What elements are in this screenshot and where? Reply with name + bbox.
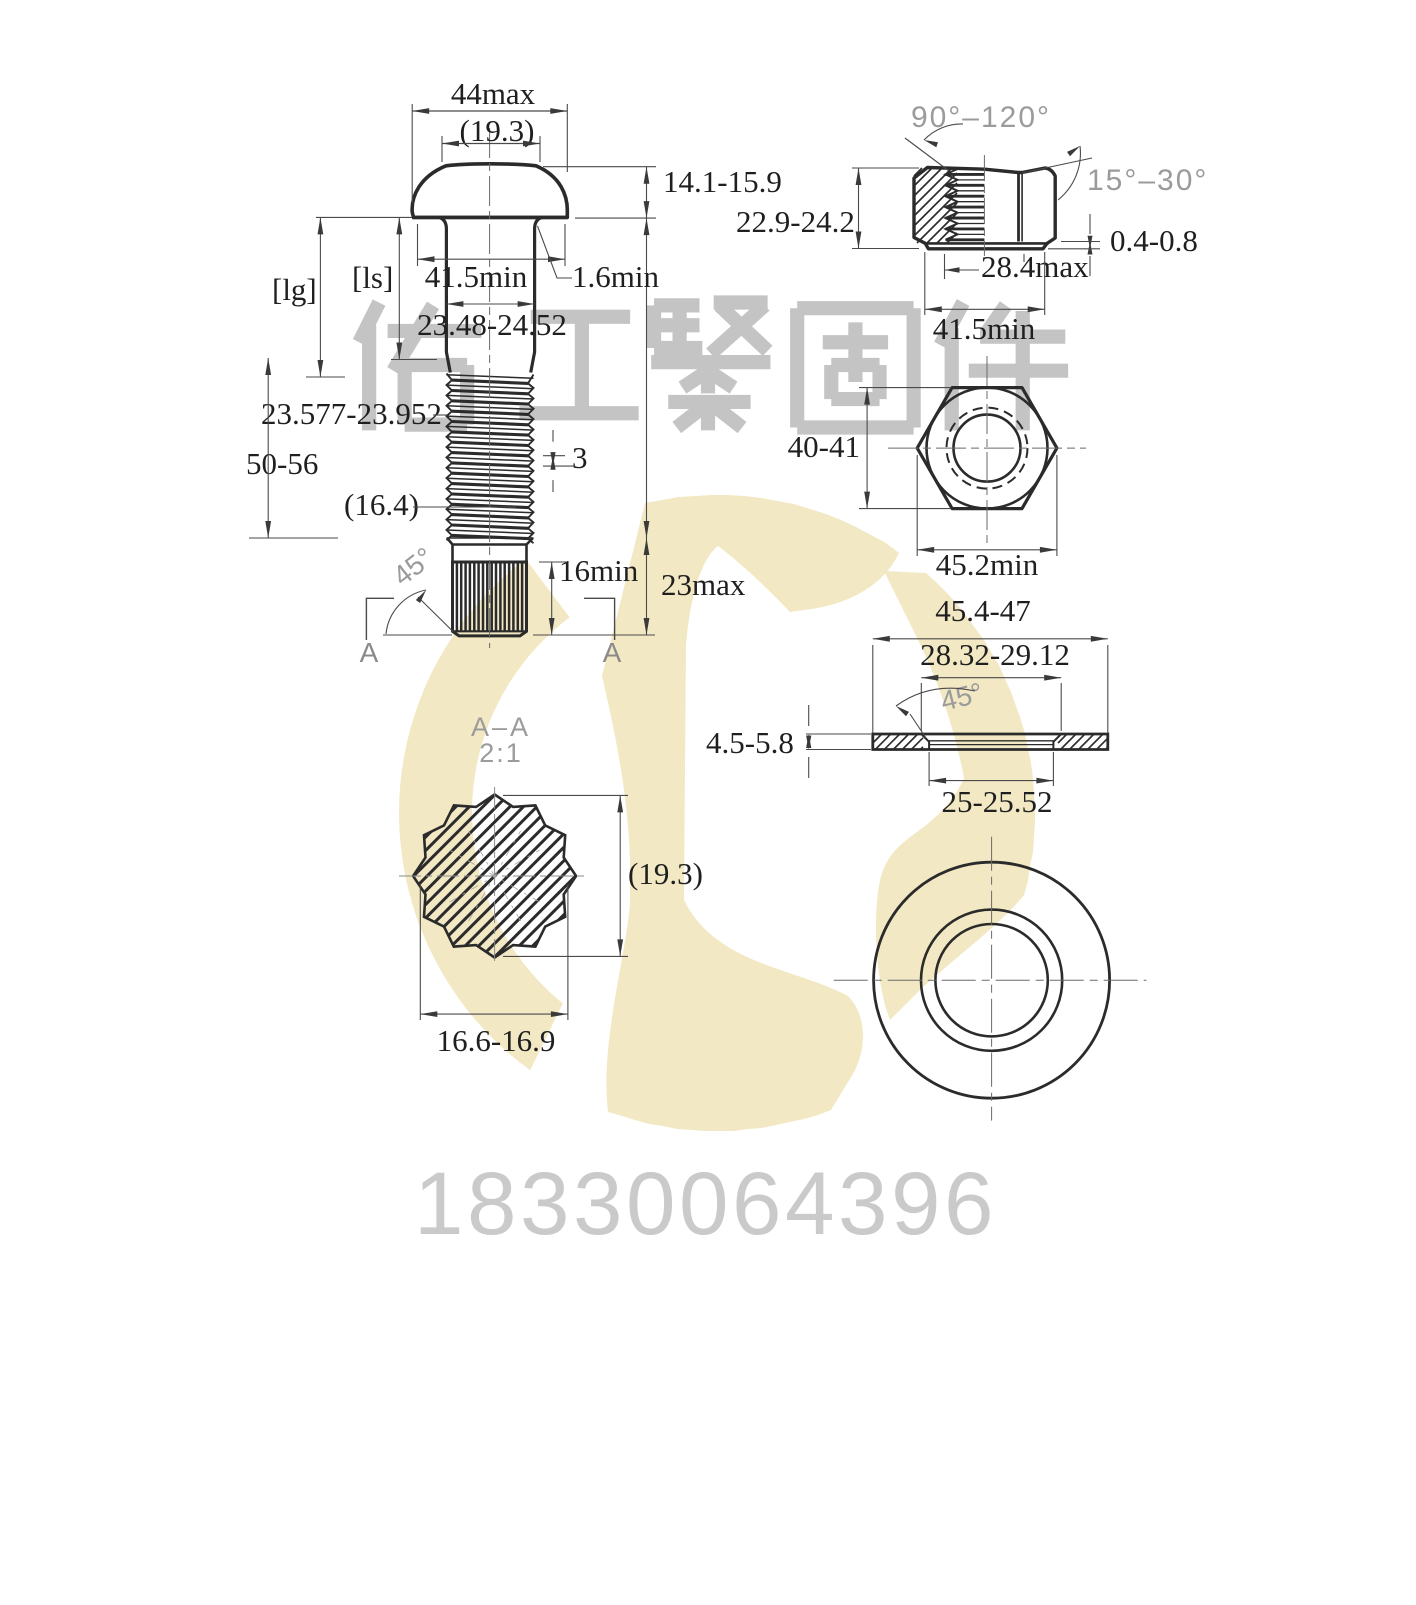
svg-text:23.48-24.52: 23.48-24.52 [417, 307, 567, 342]
svg-text:50-56: 50-56 [246, 446, 318, 481]
svg-text:28.4max: 28.4max [981, 249, 1089, 284]
svg-text:(19.3): (19.3) [628, 856, 703, 891]
svg-text:23.577-23.952: 23.577-23.952 [261, 396, 442, 431]
svg-text:41.5min: 41.5min [933, 311, 1036, 346]
svg-text:16.6-16.9: 16.6-16.9 [437, 1023, 556, 1058]
svg-text:18330064396: 18330064396 [414, 1153, 997, 1253]
svg-text:22.9-24.2: 22.9-24.2 [736, 204, 855, 239]
svg-text:4.5-5.8: 4.5-5.8 [706, 725, 794, 760]
svg-text:44max: 44max [451, 76, 536, 111]
svg-text:[lg]: [lg] [272, 272, 317, 307]
svg-text:3: 3 [572, 440, 588, 475]
svg-text:40-41: 40-41 [788, 429, 860, 464]
svg-text:15°–30°: 15°–30° [1087, 164, 1208, 197]
svg-text:45.4-47: 45.4-47 [935, 593, 1031, 628]
svg-text:0.4-0.8: 0.4-0.8 [1110, 223, 1198, 258]
svg-text:14.1-15.9: 14.1-15.9 [663, 164, 782, 199]
svg-text:16min: 16min [559, 553, 639, 588]
svg-text:(16.4): (16.4) [344, 487, 419, 522]
svg-text:45.2min: 45.2min [936, 547, 1039, 582]
svg-text:25-25.52: 25-25.52 [941, 784, 1052, 819]
svg-text:1.6min: 1.6min [572, 259, 659, 294]
svg-text:2:1: 2:1 [479, 738, 523, 768]
svg-text:23max: 23max [661, 567, 746, 602]
svg-text:[ls]: [ls] [352, 260, 393, 295]
svg-text:90°–120°: 90°–120° [911, 101, 1051, 134]
svg-text:A: A [603, 637, 622, 668]
svg-text:A: A [360, 637, 379, 668]
svg-text:28.32-29.12: 28.32-29.12 [920, 637, 1070, 672]
svg-text:41.5min: 41.5min [425, 259, 528, 294]
